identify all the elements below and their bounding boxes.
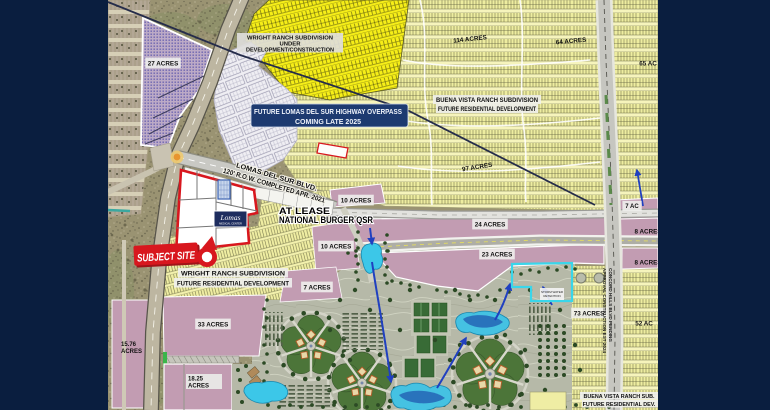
svg-text:8 ACRES: 8 ACRES: [634, 259, 661, 266]
svg-text:FUTURE LOMAS DEL SUR HIGHWAY O: FUTURE LOMAS DEL SUR HIGHWAY OVERPASS: [254, 107, 402, 116]
svg-text:7 AC: 7 AC: [625, 204, 639, 210]
svg-text:FUTURE RESIDENTIAL DEVELOPMENT: FUTURE RESIDENTIAL DEVELOPMENT: [177, 280, 289, 287]
svg-text:33 ACRES: 33 ACRES: [198, 321, 229, 328]
svg-text:FUTURE RESIDENTIAL DEV.: FUTURE RESIDENTIAL DEV.: [583, 402, 656, 408]
svg-text:27 ACRES: 27 ACRES: [148, 60, 179, 67]
svg-text:18.25: 18.25: [188, 377, 204, 383]
svg-text:24 ACRES: 24 ACRES: [475, 221, 506, 228]
svg-text:8 ACRES: 8 ACRES: [634, 228, 661, 235]
svg-text:73 ACRES: 73 ACRES: [574, 310, 605, 317]
svg-text:ACRES: ACRES: [188, 384, 209, 390]
svg-text:ACRES: ACRES: [121, 349, 142, 355]
svg-text:7 ACRES: 7 ACRES: [303, 284, 330, 291]
svg-text:52 AC: 52 AC: [635, 320, 653, 327]
svg-text:DEVELOPMENT/CONSTRUCTION: DEVELOPMENT/CONSTRUCTION: [246, 47, 334, 53]
svg-text:Lomas: Lomas: [219, 213, 240, 222]
svg-text:COMING LATE 2025: COMING LATE 2025: [295, 117, 361, 126]
svg-text:MEDICAL CENTER: MEDICAL CENTER: [219, 222, 242, 226]
svg-text:15.76: 15.76: [121, 342, 137, 348]
svg-text:RETENTION: RETENTION: [543, 294, 560, 298]
svg-text:10 ACRES: 10 ACRES: [341, 197, 372, 204]
svg-text:10 ACRES: 10 ACRES: [321, 243, 352, 250]
svg-text:BUENA VISTA RANCH SUB.: BUENA VISTA RANCH SUB.: [583, 394, 655, 400]
svg-text:65 AC: 65 AC: [639, 60, 657, 67]
svg-text:FUTURE RESIDENTIAL DEVELOPMENT: FUTURE RESIDENTIAL DEVELOPMENT: [438, 106, 536, 113]
svg-text:23 ACRES: 23 ACRES: [482, 251, 513, 258]
svg-text:NATIONAL BURGER QSR: NATIONAL BURGER QSR: [279, 215, 373, 225]
svg-text:WRIGHT RANCH SUBDIVISION: WRIGHT RANCH SUBDIVISION: [181, 270, 285, 277]
svg-text:APPROVAL CONSTRUCTION EST 2024: APPROVAL CONSTRUCTION EST 2024: [602, 268, 607, 354]
svg-text:CONCORD HILLS BLVD PENDING: CONCORD HILLS BLVD PENDING: [608, 268, 613, 342]
svg-text:BUENA VISTA RANCH SUBDIVISION: BUENA VISTA RANCH SUBDIVISION: [436, 97, 538, 104]
